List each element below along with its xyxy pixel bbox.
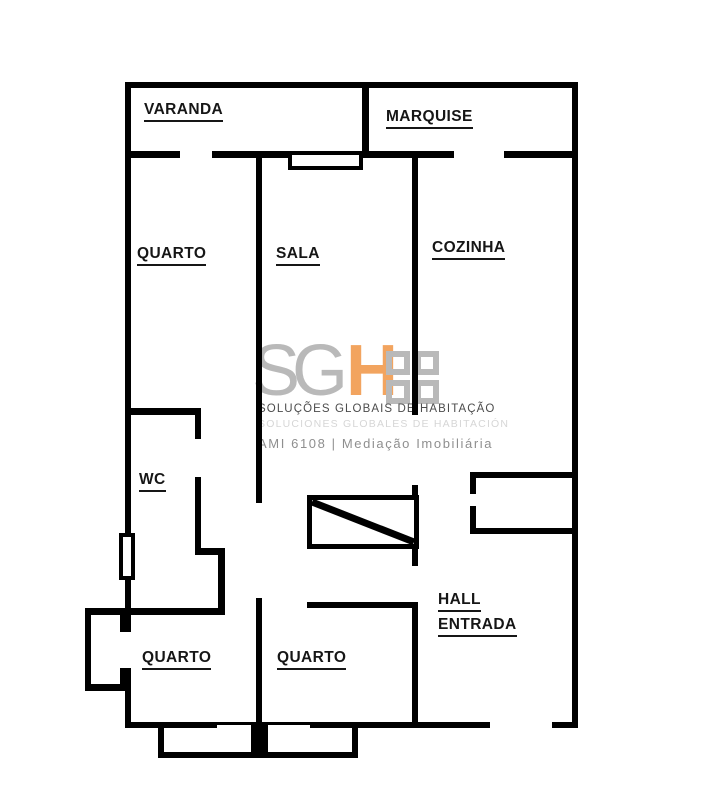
logo-tagline-shadow: SOLUCIONES GLOBALES DE HABITACIÓN [258,418,509,430]
wall-segment [310,722,490,728]
floorplan-canvas: SGH SOLUÇÕES GLOBAIS DE HABITAÇÃO SOLUCI… [0,0,713,811]
wall-segment [368,151,454,158]
wall-segment [120,608,131,632]
logo-grid-square [386,351,410,375]
wall-segment [470,528,576,534]
wall-segment [504,151,578,158]
agency-logo: SGH [252,336,390,406]
wall-segment [120,668,131,691]
wall-segment [125,408,201,415]
closet-diagonal-line [312,500,414,544]
room-label-hall-entrada: HALL ENTRADA [438,591,517,641]
logo-tagline: SOLUÇÕES GLOBAIS DE HABITAÇÃO [258,403,495,415]
wall-segment [362,82,578,88]
wall-segment [470,506,476,534]
wall-segment [262,752,358,758]
logo-grid-square [386,380,410,404]
logo-h-text: H [340,331,390,411]
wall-segment [552,722,578,728]
wall-segment [195,415,201,439]
wall-segment [362,82,369,158]
room-label-varanda: VARANDA [144,101,223,122]
wall-segment [195,477,201,550]
room-label-quarto-bottom-left: QUARTO [142,649,211,670]
room-label-cozinha: COZINHA [432,239,505,260]
logo-sg-text: SG [252,331,340,411]
logo-grid-square [415,380,439,404]
wall-segment [470,472,576,478]
room-label-quarto-top: QUARTO [137,245,206,266]
wall-segment [256,158,262,503]
room-label-quarto-bottom-middle: QUARTO [277,649,346,670]
room-label-marquise: MARQUISE [386,108,473,129]
wall-segment [85,608,225,615]
wall-segment [85,608,91,691]
wall-segment [195,548,225,555]
wall-segment [125,722,217,728]
wall-segment [412,602,418,728]
wall-segment [158,752,257,758]
room-label-wc: WC [139,471,166,492]
wall-segment [125,82,368,88]
closet-symbol [307,495,419,549]
wall-segment [470,472,476,494]
window-sala [288,151,363,170]
wall-segment [307,602,418,608]
wall-segment [218,555,225,612]
wall-segment [125,151,180,158]
wall-segment [412,158,418,415]
wall-segment [125,82,131,158]
logo-grid-square [415,351,439,375]
window-wc [119,533,135,580]
room-label-sala: SALA [276,245,320,266]
logo-license-text: AMI 6108 | Mediação Imobiliária [258,436,493,451]
wall-segment [125,158,131,533]
wall-segment [572,82,578,728]
